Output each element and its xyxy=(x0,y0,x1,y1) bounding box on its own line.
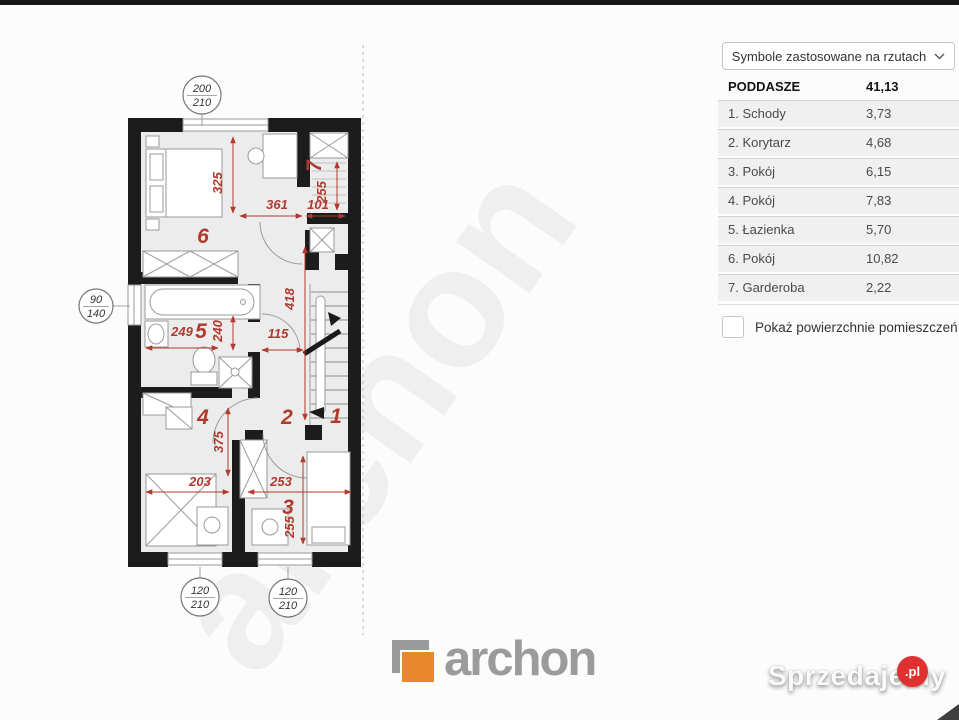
room-number-5: 5 xyxy=(195,320,207,343)
svg-text:210: 210 xyxy=(192,97,212,109)
table-row: 6. Pokój 10,82 xyxy=(718,245,959,272)
page: archon xyxy=(0,0,959,720)
show-areas-label[interactable]: Pokaż powierzchnie pomieszczeń xyxy=(755,320,958,335)
room-number-4: 4 xyxy=(196,406,209,429)
divider xyxy=(718,304,959,305)
row-label: 7. Garderoba xyxy=(728,275,805,301)
row-value: 7,83 xyxy=(866,188,891,214)
table-row: 5. Łazienka 5,70 xyxy=(718,216,959,243)
row-value: 3,73 xyxy=(866,101,891,127)
dimension-label: 115 xyxy=(268,326,289,341)
row-label: 2. Korytarz xyxy=(728,130,791,156)
row-value: 6,15 xyxy=(866,159,891,185)
room-areas-panel: Symbole zastosowane na rzutach PODDASZE … xyxy=(718,0,959,720)
dimension-label: 253 xyxy=(269,474,292,489)
table-row: 7. Garderoba 2,22 xyxy=(718,274,959,301)
room-area-table: 1. Schody 3,73 2. Korytarz 4,68 3. Pokój… xyxy=(718,100,959,303)
room-number-1: 1 xyxy=(330,405,342,428)
dimension-label: 240 xyxy=(210,319,225,342)
table-header-label: PODDASZE xyxy=(728,74,800,100)
corner-triangle xyxy=(937,704,959,720)
svg-text:120: 120 xyxy=(191,585,210,597)
row-value: 2,22 xyxy=(866,275,891,301)
archon-logo: archon xyxy=(391,630,671,692)
dimension-label: 375 xyxy=(211,430,226,452)
archon-logo-text: archon xyxy=(444,630,595,688)
show-areas-checkbox-row[interactable]: Pokaż powierzchnie pomieszczeń xyxy=(722,316,958,338)
table-row: 1. Schody 3,73 xyxy=(718,100,959,127)
room-number-7: 7 xyxy=(303,159,326,172)
show-areas-checkbox[interactable] xyxy=(722,316,744,338)
svg-text:140: 140 xyxy=(87,308,106,320)
svg-text:200: 200 xyxy=(192,83,212,95)
floor-plan: archon xyxy=(0,0,720,720)
dimension-label: 418 xyxy=(282,287,297,310)
table-header-value: 41,13 xyxy=(866,74,899,100)
window-size-symbol: 90 140 xyxy=(79,289,130,323)
row-value: 4,68 xyxy=(866,130,891,156)
dimension-label: 325 xyxy=(210,171,225,193)
row-value: 10,82 xyxy=(866,246,899,272)
room-number-2: 2 xyxy=(280,406,293,429)
table-header-row: PODDASZE 41,13 xyxy=(718,74,959,100)
svg-text:210: 210 xyxy=(278,600,298,612)
svg-text:90: 90 xyxy=(90,294,103,306)
archon-logo-orange-square-icon xyxy=(400,650,434,682)
dimension-label: 249 xyxy=(170,324,193,339)
table-row: 4. Pokój 7,83 xyxy=(718,187,959,214)
room-number-6: 6 xyxy=(197,225,209,248)
table-row: 3. Pokój 6,15 xyxy=(718,158,959,185)
dimension-label: 203 xyxy=(188,474,211,489)
symbols-dropdown-label: Symbole zastosowane na rzutach xyxy=(732,49,926,64)
dimension-label: 361 xyxy=(266,197,288,212)
svg-text:120: 120 xyxy=(279,586,298,598)
row-label: 4. Pokój xyxy=(728,188,775,214)
symbols-dropdown[interactable]: Symbole zastosowane na rzutach xyxy=(722,42,955,70)
dimension-label: 255 xyxy=(314,180,329,203)
row-label: 5. Łazienka xyxy=(728,217,795,243)
chevron-down-icon xyxy=(934,53,945,60)
sprzedajemy-pl-badge: .pl xyxy=(897,656,928,687)
room-number-3: 3 xyxy=(282,496,294,519)
row-label: 3. Pokój xyxy=(728,159,775,185)
table-row: 2. Korytarz 4,68 xyxy=(718,129,959,156)
row-value: 5,70 xyxy=(866,217,891,243)
row-label: 6. Pokój xyxy=(728,246,775,272)
row-label: 1. Schody xyxy=(728,101,786,127)
svg-text:210: 210 xyxy=(190,599,210,611)
